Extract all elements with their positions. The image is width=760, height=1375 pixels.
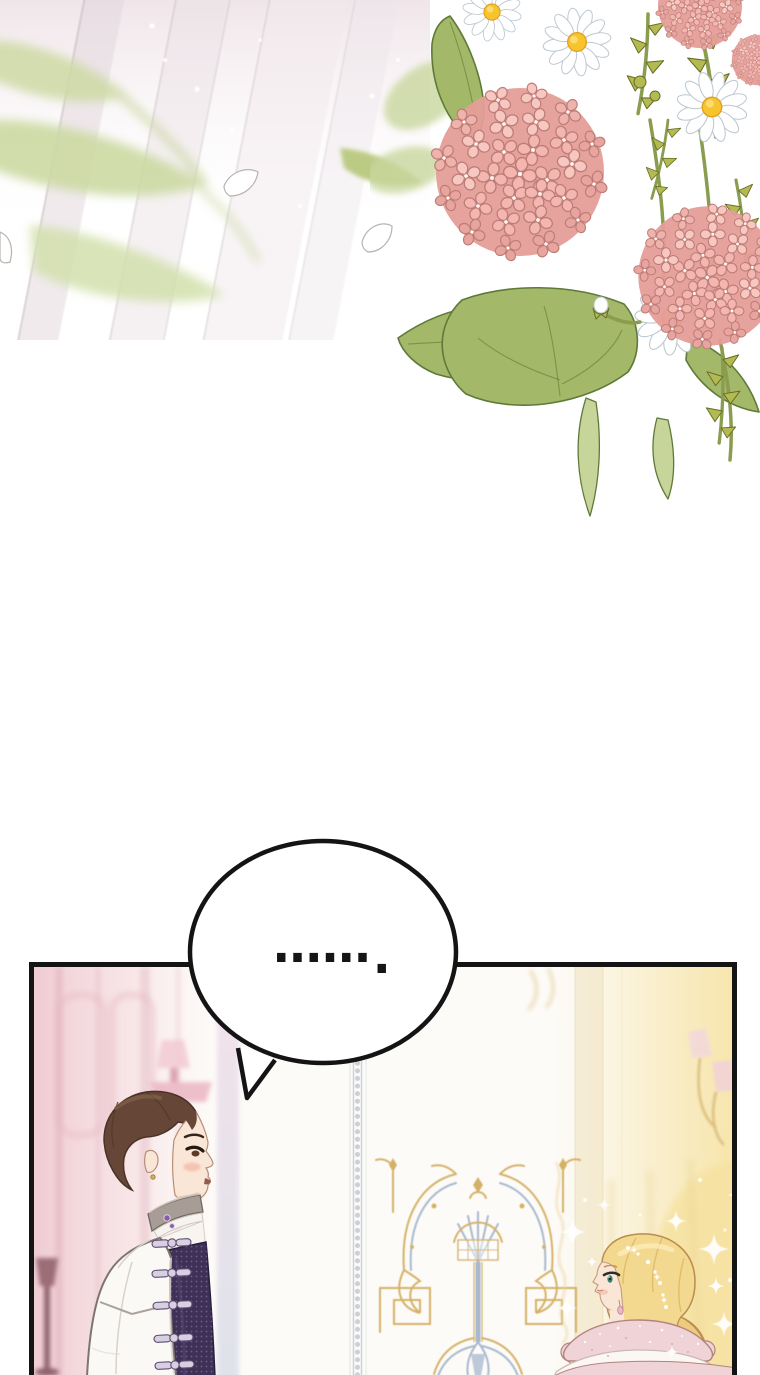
flower-bouquet xyxy=(370,0,760,545)
man-blush xyxy=(184,1163,201,1172)
daisy-top xyxy=(538,3,615,80)
speech-bubble: ....... xyxy=(183,830,475,1110)
man-eye-iris xyxy=(192,1151,200,1157)
ellipsis-dots: ...... xyxy=(272,918,369,974)
webtoon-page: ....... xyxy=(0,0,760,1375)
woman-eye-glint xyxy=(608,1276,610,1278)
woman-eye-pupil xyxy=(609,1278,611,1280)
trailing-period: . xyxy=(373,933,389,981)
bubble-text: ....... xyxy=(183,922,475,970)
light-rays-and-leaves xyxy=(0,0,430,340)
daisy-top-partial xyxy=(458,0,526,46)
man-earring xyxy=(151,1175,155,1179)
